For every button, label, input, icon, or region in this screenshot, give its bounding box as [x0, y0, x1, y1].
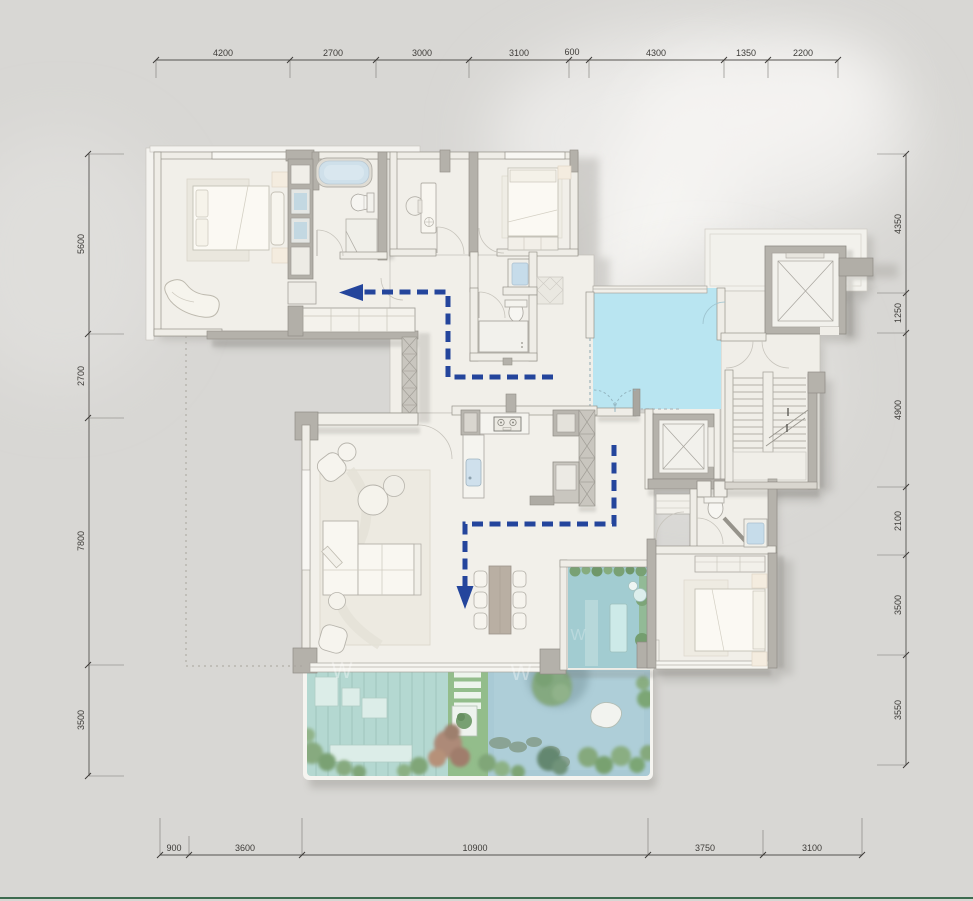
- svg-text:600: 600: [564, 47, 579, 57]
- svg-text:7800: 7800: [76, 531, 86, 551]
- svg-text:1250: 1250: [893, 303, 903, 323]
- svg-text:10900: 10900: [462, 843, 487, 853]
- svg-text:3100: 3100: [802, 843, 822, 853]
- svg-text:4200: 4200: [213, 48, 233, 58]
- svg-text:2100: 2100: [893, 511, 903, 531]
- svg-text:3000: 3000: [412, 48, 432, 58]
- svg-text:W: W: [570, 627, 586, 644]
- svg-text:3100: 3100: [509, 48, 529, 58]
- svg-text:W: W: [332, 658, 353, 683]
- svg-text:3600: 3600: [235, 843, 255, 853]
- svg-text:5600: 5600: [76, 234, 86, 254]
- svg-text:3500: 3500: [893, 595, 903, 615]
- svg-text:2200: 2200: [793, 48, 813, 58]
- svg-text:2700: 2700: [76, 366, 86, 386]
- svg-text:3550: 3550: [893, 700, 903, 720]
- svg-text:1350: 1350: [736, 48, 756, 58]
- svg-text:W: W: [511, 660, 532, 685]
- svg-text:4900: 4900: [893, 400, 903, 420]
- svg-text:4300: 4300: [646, 48, 666, 58]
- svg-text:3500: 3500: [76, 710, 86, 730]
- svg-text:3750: 3750: [695, 843, 715, 853]
- svg-text:4350: 4350: [893, 214, 903, 234]
- svg-text:2700: 2700: [323, 48, 343, 58]
- svg-text:900: 900: [166, 843, 181, 853]
